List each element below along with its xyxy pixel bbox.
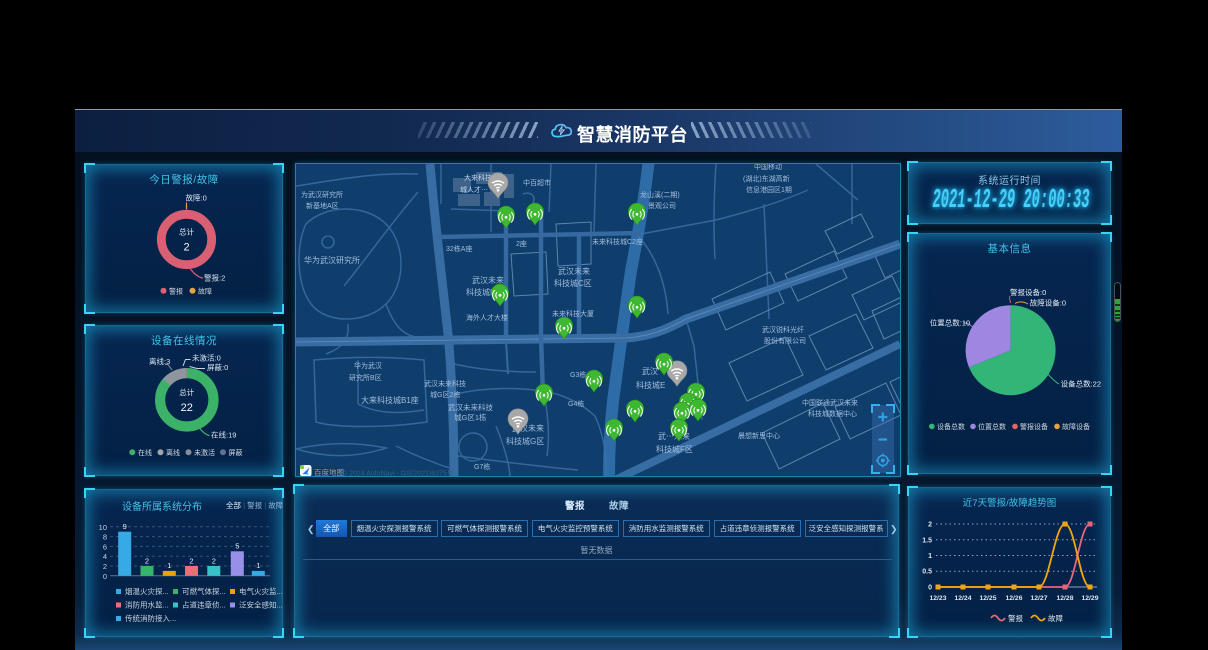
svg-text:1: 1 xyxy=(167,561,171,570)
svg-text:2: 2 xyxy=(212,556,216,565)
svg-text:故障: 故障 xyxy=(1048,613,1064,623)
svg-text:12/23: 12/23 xyxy=(929,595,946,602)
svg-text:科技城G区: 科技城G区 xyxy=(506,436,544,446)
svg-text:故障设备: 故障设备 xyxy=(1062,422,1090,431)
svg-text:警报设备: 警报设备 xyxy=(1020,422,1048,431)
svg-text:研究所B区: 研究所B区 xyxy=(349,373,382,382)
svg-text:离线: 离线 xyxy=(166,448,180,457)
svg-text:离线:3: 离线:3 xyxy=(149,356,170,366)
svg-text:武汉锐科光纤: 武汉锐科光纤 xyxy=(762,325,804,334)
svg-text:2: 2 xyxy=(183,242,189,254)
svg-text:电气火灾监...: 电气火灾监... xyxy=(239,586,283,596)
svg-text:武汉未来: 武汉未来 xyxy=(558,266,590,276)
svg-text:占道违章侦...: 占道违章侦... xyxy=(182,600,226,610)
svg-text:0: 0 xyxy=(103,572,107,581)
svg-text:中百超市: 中百超市 xyxy=(523,178,551,187)
svg-text:城G区2栋: 城G区2栋 xyxy=(430,390,460,399)
svg-text:5: 5 xyxy=(235,542,239,551)
svg-text:在线: 在线 xyxy=(138,448,152,457)
svg-text:武汉: 武汉 xyxy=(642,366,658,376)
svg-text:12/28: 12/28 xyxy=(1056,595,1073,602)
svg-text:传统消防接入...: 传统消防接入... xyxy=(125,613,176,623)
svg-text:2: 2 xyxy=(928,522,932,529)
svg-text:故障:0: 故障:0 xyxy=(186,193,207,203)
svg-text:G3栋: G3栋 xyxy=(570,370,586,379)
svg-text:位置总数:10: 位置总数:10 xyxy=(930,318,970,328)
svg-text:1: 1 xyxy=(256,561,260,570)
svg-text:中国移动: 中国移动 xyxy=(754,164,782,171)
svg-text:6: 6 xyxy=(103,542,107,551)
svg-text:为武汉研究所: 为武汉研究所 xyxy=(301,190,343,199)
svg-text:科技城F区: 科技城F区 xyxy=(656,444,693,454)
svg-text:位置总数: 位置总数 xyxy=(978,422,1006,431)
svg-text:10: 10 xyxy=(99,523,107,532)
svg-text:未来科技城C2座: 未来科技城C2座 xyxy=(592,237,643,246)
svg-text:科技城E: 科技城E xyxy=(636,380,665,390)
svg-text:© 2024 AutoNavi - GS(2021)6375: © 2024 AutoNavi - GS(2021)6375号 xyxy=(342,470,454,477)
svg-text:城人才⋯: 城人才⋯ xyxy=(460,185,488,194)
svg-text:12/25: 12/25 xyxy=(979,595,996,602)
svg-text:G4栋: G4栋 xyxy=(568,399,584,408)
svg-text:0.5: 0.5 xyxy=(922,569,932,576)
svg-text:华为武汉: 华为武汉 xyxy=(354,361,382,370)
svg-text:景观公司: 景观公司 xyxy=(648,202,676,210)
svg-text:新基地A区: 新基地A区 xyxy=(306,201,339,210)
svg-text:科技城C区: 科技城C区 xyxy=(554,278,592,288)
svg-text:武汉未来科技: 武汉未来科技 xyxy=(448,402,493,412)
svg-text:12/24: 12/24 xyxy=(954,595,971,602)
svg-text:22: 22 xyxy=(181,402,193,414)
svg-text:0: 0 xyxy=(928,585,932,592)
svg-text:武汉未来: 武汉未来 xyxy=(472,275,504,285)
svg-text:华为武汉研究所: 华为武汉研究所 xyxy=(304,255,360,265)
svg-text:故障: 故障 xyxy=(198,286,212,295)
svg-text:9: 9 xyxy=(123,522,127,531)
svg-text:未来科技大厦: 未来科技大厦 xyxy=(552,309,594,318)
svg-text:2: 2 xyxy=(189,556,193,565)
svg-text:晨想新思中心: 晨想新思中心 xyxy=(738,431,780,440)
svg-text:32栋A座: 32栋A座 xyxy=(446,244,472,253)
svg-text:龙山溪(二期): 龙山溪(二期) xyxy=(640,190,680,199)
svg-text:设备总数:22: 设备总数:22 xyxy=(1061,379,1101,389)
svg-text:科技城数据中心: 科技城数据中心 xyxy=(808,409,857,418)
svg-text:8: 8 xyxy=(103,533,107,542)
svg-text:12/27: 12/27 xyxy=(1030,595,1047,602)
svg-text:1.5: 1.5 xyxy=(922,537,932,544)
svg-text:大来科技: 大来科技 xyxy=(464,173,492,182)
svg-text:消防用水监...: 消防用水监... xyxy=(125,600,169,610)
svg-text:百度地图: 百度地图 xyxy=(314,467,344,476)
svg-text:屏蔽:0: 屏蔽:0 xyxy=(207,362,228,372)
svg-text:屏蔽: 屏蔽 xyxy=(229,448,243,457)
svg-text:2: 2 xyxy=(145,556,149,565)
svg-text:总计: 总计 xyxy=(179,227,194,237)
svg-text:海外人才大楼: 海外人才大楼 xyxy=(466,313,508,322)
svg-text:可燃气体探...: 可燃气体探... xyxy=(182,586,226,596)
svg-text:武汉未来科技: 武汉未来科技 xyxy=(424,379,466,388)
svg-text:信息港园区1期: 信息港园区1期 xyxy=(746,185,792,194)
svg-text:大来科技城B1座: 大来科技城B1座 xyxy=(361,395,419,405)
svg-text:警报: 警报 xyxy=(1008,613,1023,623)
svg-text:(湖北)东湖高新: (湖北)东湖高新 xyxy=(743,174,790,183)
svg-text:2: 2 xyxy=(103,562,107,571)
svg-text:故障设备:0: 故障设备:0 xyxy=(1030,298,1066,308)
svg-text:城G区1栋: 城G区1栋 xyxy=(454,412,487,422)
svg-text:4: 4 xyxy=(103,552,107,561)
svg-text:烟温火灾探...: 烟温火灾探... xyxy=(125,586,169,596)
svg-text:G7栋: G7栋 xyxy=(474,462,490,471)
svg-text:泛安全感知...: 泛安全感知... xyxy=(239,600,283,610)
svg-text:2座: 2座 xyxy=(516,239,527,248)
svg-text:警报: 警报 xyxy=(169,286,183,295)
svg-text:中国联通武汉未来: 中国联通武汉未来 xyxy=(802,398,858,407)
svg-text:1: 1 xyxy=(928,553,932,560)
svg-text:警报设备:0: 警报设备:0 xyxy=(1010,287,1046,297)
svg-text:未激活: 未激活 xyxy=(194,448,215,457)
svg-text:股份有限公司: 股份有限公司 xyxy=(764,336,806,345)
svg-text:警报:2: 警报:2 xyxy=(204,273,225,283)
svg-text:总计: 总计 xyxy=(179,387,194,397)
svg-text:在线:19: 在线:19 xyxy=(211,430,236,440)
svg-text:12/26: 12/26 xyxy=(1005,595,1022,602)
svg-text:未激活:0: 未激活:0 xyxy=(192,353,221,363)
svg-text:设备总数: 设备总数 xyxy=(937,422,965,431)
svg-text:12/29: 12/29 xyxy=(1081,595,1098,602)
